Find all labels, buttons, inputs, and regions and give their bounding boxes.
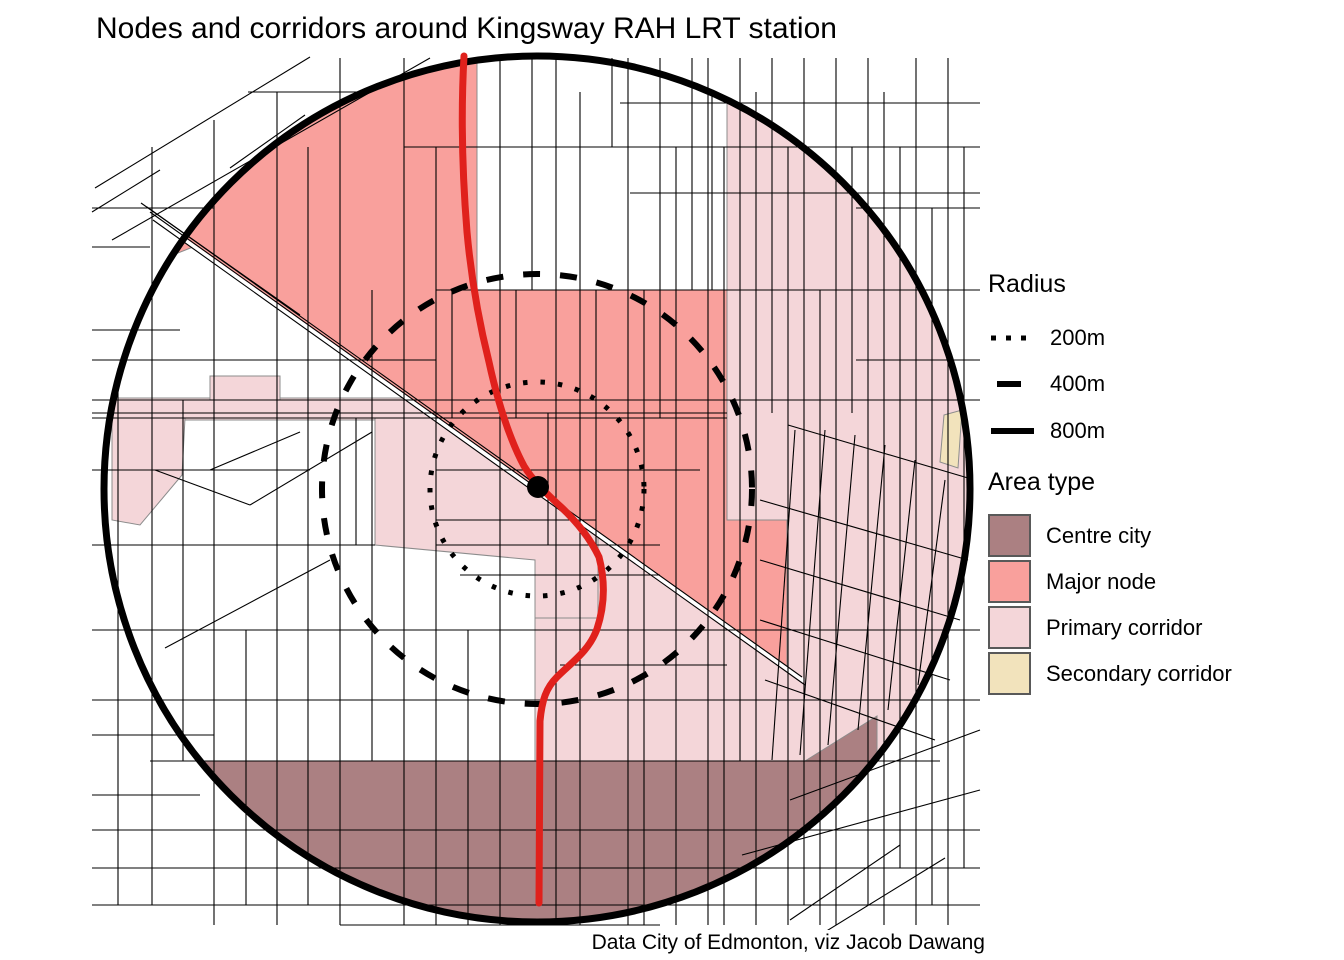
radius-label: 200m (1050, 325, 1105, 351)
radius-legend: Radius (988, 270, 1066, 299)
radius-legend-item: 200m (988, 325, 1105, 351)
area-primary-corridor-west (112, 418, 185, 525)
area-legend-item: Major node (988, 560, 1156, 603)
major-node-swatch (988, 560, 1031, 603)
area-legend: Area type (988, 468, 1095, 497)
area-label: Primary corridor (1046, 615, 1202, 641)
area-legend-title: Area type (988, 468, 1095, 497)
radius-legend-item: 800m (988, 418, 1105, 444)
radius-label: 400m (1050, 371, 1105, 397)
area-legend-item: Primary corridor (988, 606, 1202, 649)
map (0, 0, 1344, 960)
area-label: Secondary corridor (1046, 661, 1232, 687)
caption: Data City of Edmonton, viz Jacob Dawang (0, 931, 985, 955)
figure: Nodes and corridors around Kingsway RAH … (0, 0, 1344, 960)
area-legend-item: Secondary corridor (988, 652, 1232, 695)
primary-corridor-swatch (988, 606, 1031, 649)
area-label: Major node (1046, 569, 1156, 595)
area-legend-item: Centre city (988, 514, 1151, 557)
radius-legend-title: Radius (988, 270, 1066, 299)
station-dot (527, 476, 549, 498)
dotted-line-icon (988, 332, 1040, 344)
area-label: Centre city (1046, 523, 1151, 549)
dashed-line-icon (988, 378, 1040, 390)
centre-city-swatch (988, 514, 1031, 557)
area-secondary-corridor (940, 410, 962, 468)
area-primary-corridor-small (210, 376, 280, 400)
secondary-corridor-swatch (988, 652, 1031, 695)
solid-line-icon (988, 425, 1040, 437)
area-major-node (60, 35, 787, 668)
area-layer (60, 35, 1000, 960)
radius-legend-item: 400m (988, 371, 1105, 397)
radius-label: 800m (1050, 418, 1105, 444)
